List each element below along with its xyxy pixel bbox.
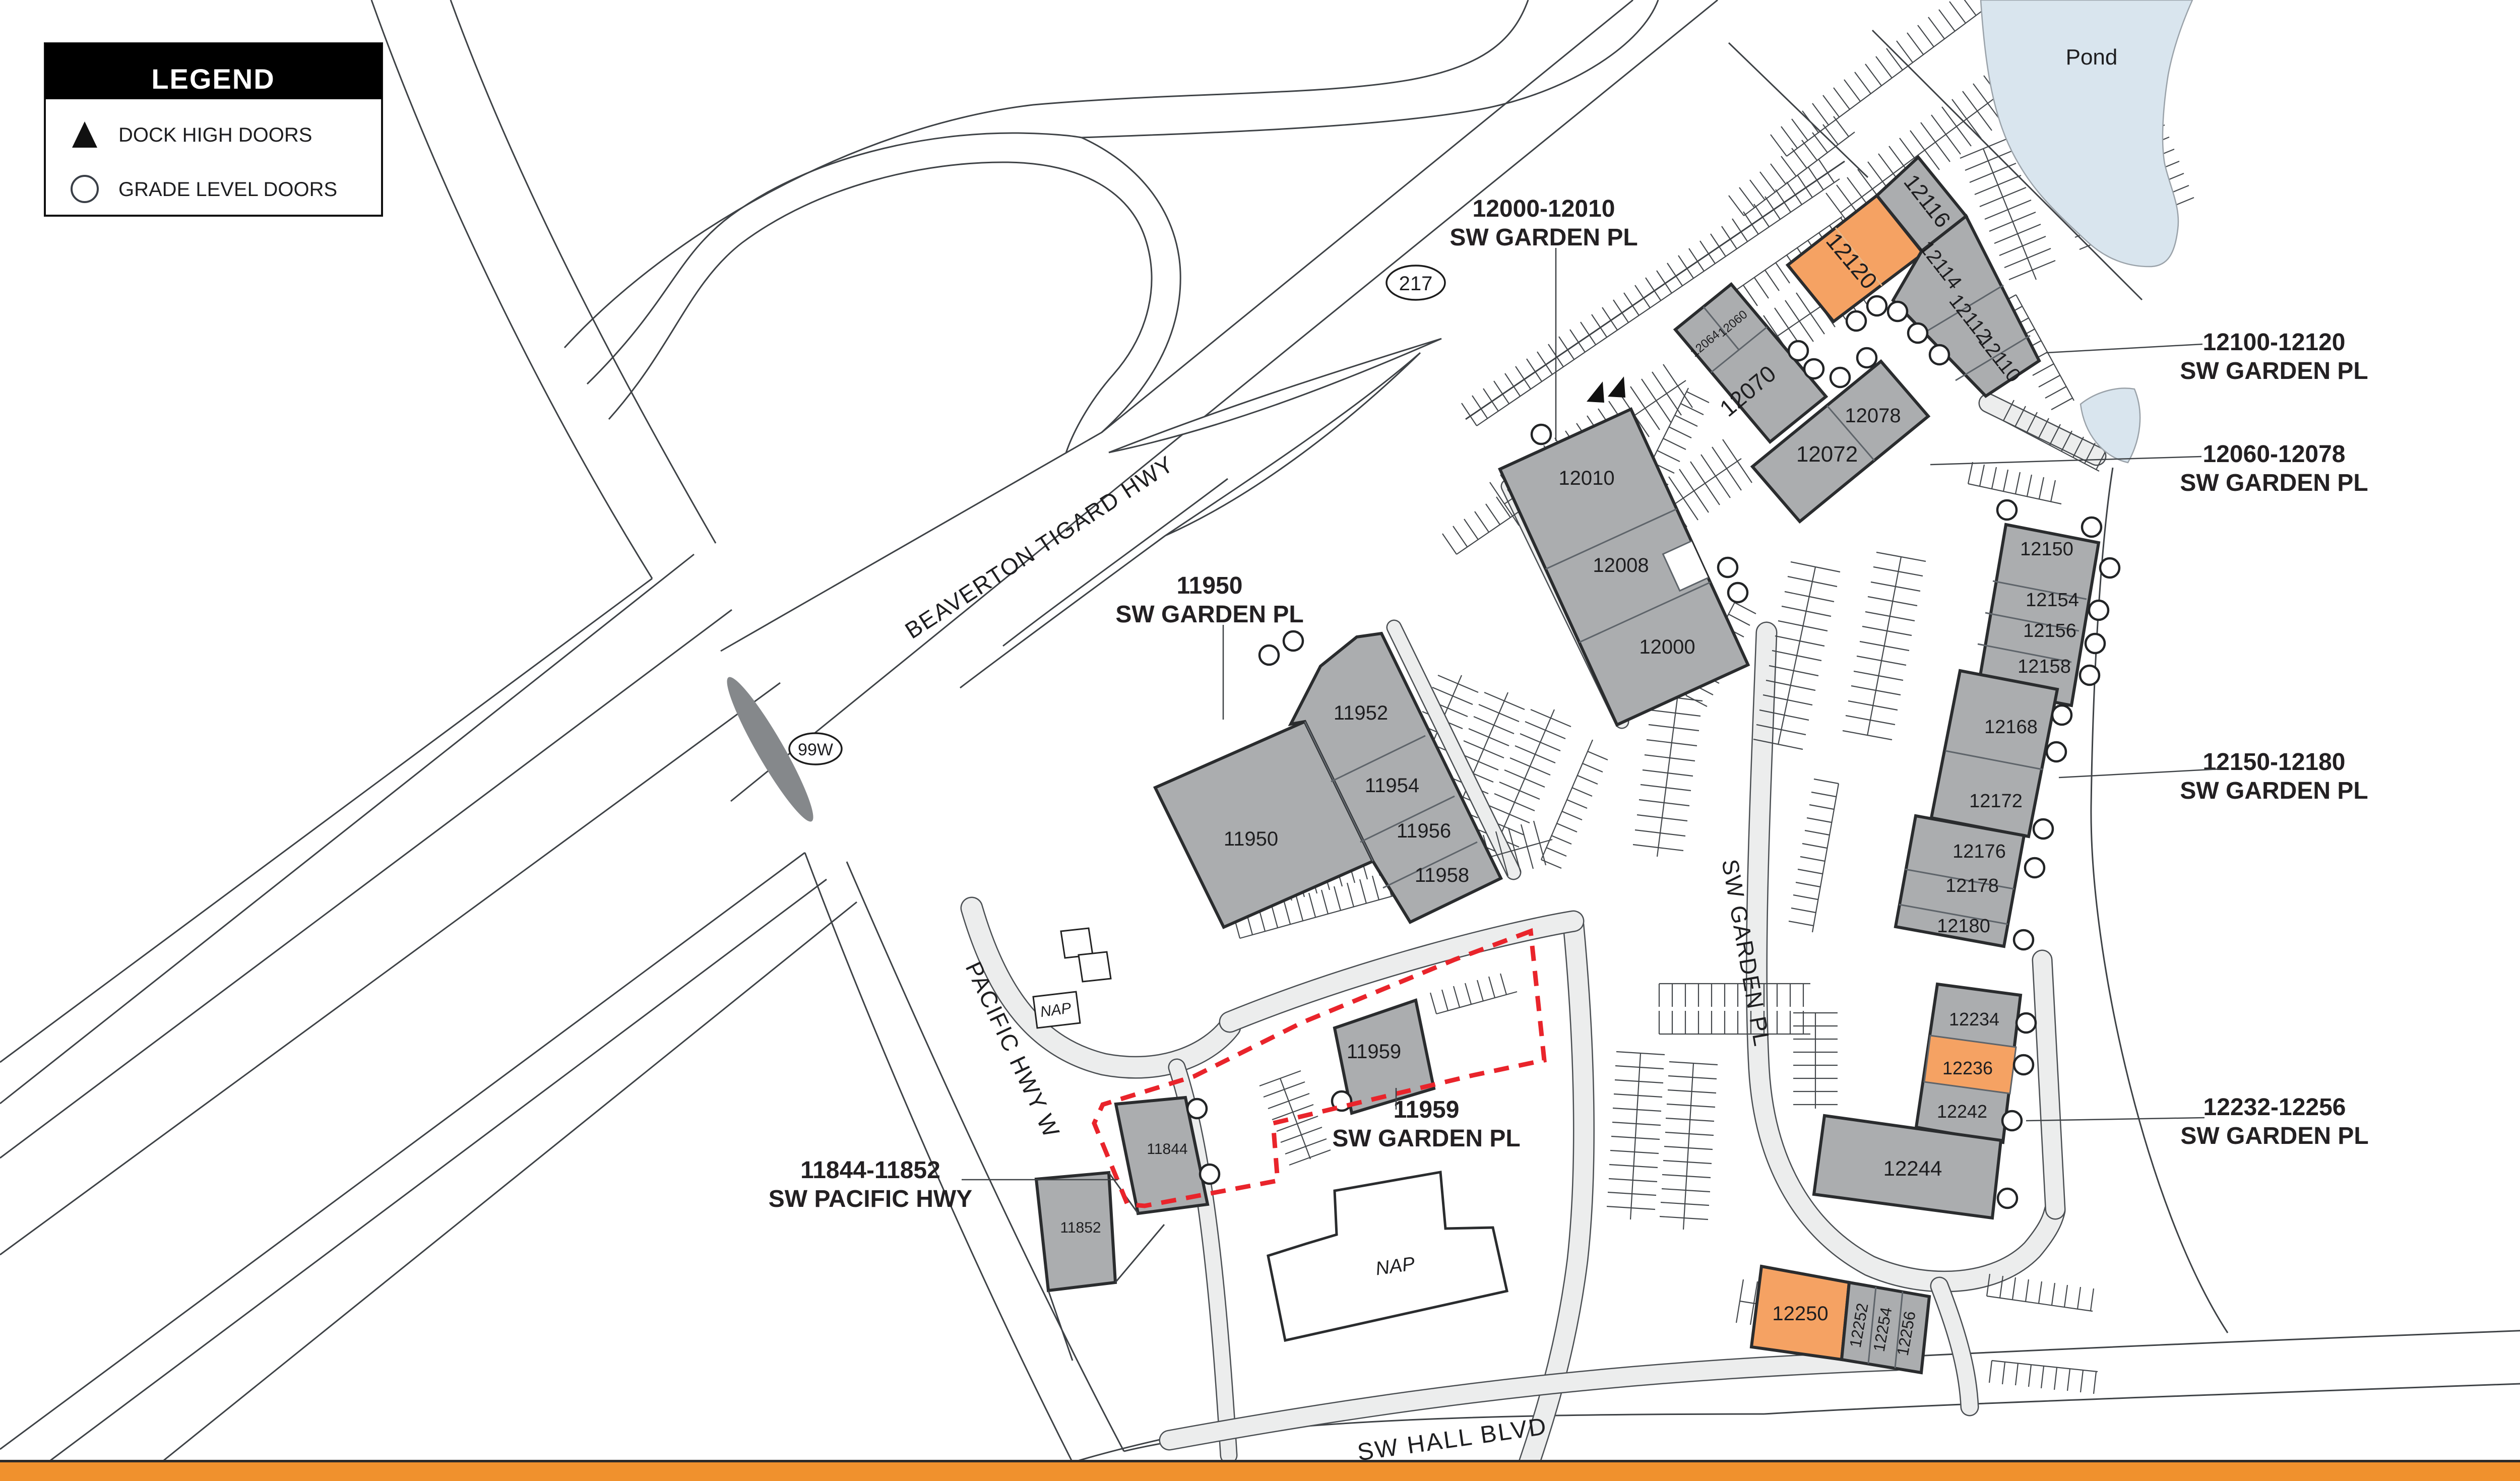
svg-text:12158: 12158 [2018,656,2071,677]
svg-text:12100-12120: 12100-12120 [2203,329,2346,356]
svg-text:12010: 12010 [1558,467,1614,489]
svg-text:12168: 12168 [1984,717,2038,738]
svg-text:Pond: Pond [2066,45,2118,70]
svg-text:SW GARDEN PL: SW GARDEN PL [1450,224,1637,251]
svg-text:11844: 11844 [1147,1141,1187,1157]
svg-text:12250: 12250 [1772,1303,1828,1325]
svg-text:12150-12180: 12150-12180 [2203,749,2346,776]
svg-text:11844-11852: 11844-11852 [800,1157,940,1184]
svg-text:11958: 11958 [1415,864,1469,886]
svg-text:12172: 12172 [1969,791,2023,812]
svg-text:11852: 11852 [1060,1219,1101,1236]
svg-text:11959: 11959 [1394,1097,1460,1123]
svg-text:217: 217 [1399,273,1433,295]
svg-text:12244: 12244 [1883,1156,1942,1180]
svg-text:SW GARDEN PL: SW GARDEN PL [2180,470,2368,496]
svg-text:SW GARDEN PL: SW GARDEN PL [1115,601,1303,628]
svg-text:DOCK HIGH DOORS: DOCK HIGH DOORS [118,124,312,146]
svg-text:12180: 12180 [1937,916,1990,937]
svg-text:12154: 12154 [2026,590,2079,611]
svg-text:12150: 12150 [2020,539,2073,560]
svg-text:12072: 12072 [1796,442,1858,467]
svg-text:12008: 12008 [1593,554,1649,576]
svg-text:12000-12010: 12000-12010 [1473,196,1615,222]
svg-text:SW GARDEN PL: SW GARDEN PL [2180,778,2368,804]
svg-text:11959: 11959 [1347,1041,1401,1063]
svg-text:12078: 12078 [1845,405,1901,427]
svg-text:SW GARDEN PL: SW GARDEN PL [2180,1123,2368,1149]
svg-text:GRADE LEVEL DOORS: GRADE LEVEL DOORS [118,178,337,201]
svg-text:12236: 12236 [1942,1058,1993,1078]
svg-text:SW GARDEN PL: SW GARDEN PL [1332,1125,1520,1152]
svg-text:99W: 99W [798,740,833,759]
svg-text:12000: 12000 [1639,636,1695,658]
svg-text:11952: 11952 [1334,702,1388,724]
svg-text:LEGEND: LEGEND [151,63,275,95]
svg-text:11956: 11956 [1397,820,1451,842]
svg-text:11950: 11950 [1177,572,1243,599]
svg-text:12176: 12176 [1952,841,2006,862]
svg-text:12156: 12156 [2023,620,2076,641]
svg-text:12234: 12234 [1949,1009,1999,1029]
svg-text:SW PACIFIC HWY: SW PACIFIC HWY [769,1186,972,1212]
svg-text:12178: 12178 [1945,875,1999,896]
svg-text:12060-12078: 12060-12078 [2203,441,2346,468]
svg-text:12232-12256: 12232-12256 [2203,1094,2346,1121]
svg-text:12242: 12242 [1937,1101,1987,1122]
svg-text:SW GARDEN PL: SW GARDEN PL [2180,358,2368,384]
svg-text:11950: 11950 [1224,828,1278,850]
svg-text:11954: 11954 [1365,775,1419,797]
